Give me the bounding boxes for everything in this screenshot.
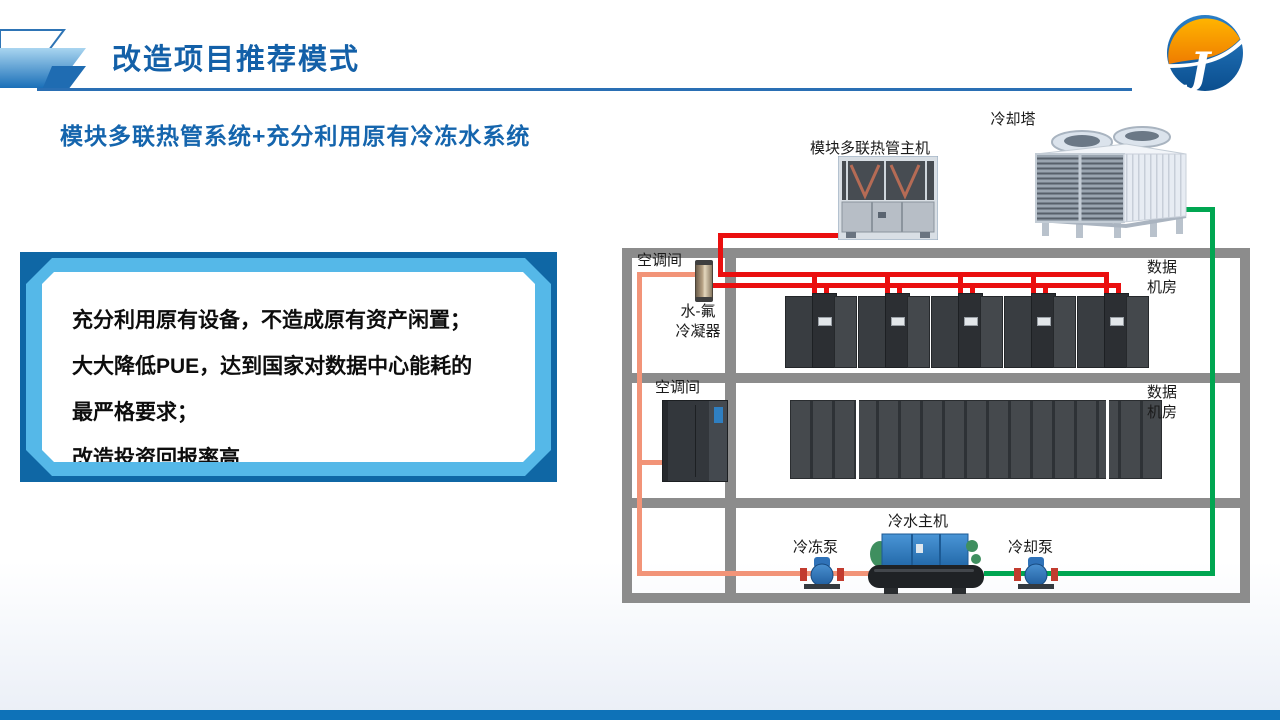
cooling-pump-label: 冷却泵 (1008, 538, 1053, 558)
subtitle: 模块多联热管系统+充分利用原有冷冻水系统 (60, 117, 530, 151)
chilled-pump-image (800, 556, 844, 590)
crac-unit (662, 400, 728, 482)
chiller-label: 冷水主机 (888, 512, 948, 532)
refrigerant-pipe-unit-vertical (718, 233, 723, 277)
benefits-text: 充分利用原有设备，不造成原有资产闲置； 大大降低PUE，达到国家对数据中心能耗的… (72, 298, 521, 482)
crac-logo-badge (714, 407, 723, 423)
refrigerant-pipe-return (708, 283, 1121, 288)
server-rack-group (785, 293, 855, 366)
chilled-pump-label: 冷冻泵 (793, 538, 838, 558)
chiller-image (868, 532, 984, 594)
benefit-line: 改造投资回报率高 (72, 436, 521, 482)
server-rack-group (1077, 293, 1147, 366)
server-rack-row (790, 400, 1162, 479)
header-decoration (0, 8, 110, 100)
refrigerant-pipe-unit-horizontal (718, 233, 858, 238)
benefits-box-accent: 充分利用原有设备，不造成原有资产闲置； 大大降低PUE，达到国家对数据中心能耗的… (26, 258, 551, 476)
floor-divider-1 (622, 373, 1250, 383)
data-room-1-label: 数据机房 (1147, 258, 1183, 298)
company-logo: J (1162, 12, 1248, 94)
benefit-line: 充分利用原有设备，不造成原有资产闲置； (72, 298, 521, 344)
condenser-label: 水-氟 冷凝器 (666, 302, 730, 342)
frame-right (1240, 248, 1250, 603)
server-rack-group (858, 293, 928, 366)
server-rack-group (1004, 293, 1074, 366)
cooling-tower-image (1030, 116, 1192, 240)
header-rule (37, 88, 1132, 91)
benefits-box-inner: 充分利用原有设备，不造成原有资产闲置； 大大降低PUE，达到国家对数据中心能耗的… (42, 272, 535, 462)
frame-left (622, 248, 632, 603)
cooling-water-pipe-vertical (1210, 207, 1215, 576)
data-room-2-label: 数据机房 (1147, 383, 1183, 423)
frame-top (622, 248, 1250, 258)
server-rack-group (931, 293, 1001, 366)
cooling-pump-image (1014, 556, 1058, 590)
benefits-box: 充分利用原有设备，不造成原有资产闲置； 大大降低PUE，达到国家对数据中心能耗的… (20, 252, 557, 482)
frame-bottom (622, 593, 1250, 603)
chilled-water-pipe-to-condenser (641, 272, 697, 277)
heat-pipe-unit-image (838, 156, 938, 240)
heat-pipe-unit-label: 模块多联热管主机 (802, 139, 938, 159)
condenser-label-line1: 水-氟 (666, 302, 730, 322)
cooling-tower-label: 冷却塔 (978, 110, 1048, 130)
ac-room-1-label: 空调间 (637, 251, 682, 271)
chilled-water-pipe-vertical (637, 272, 642, 576)
slide: 改造项目推荐模式 J 模块多联热管系统+充分利用原有冷冻水系统 充分利用原有设备… (0, 0, 1280, 720)
page-title: 改造项目推荐模式 (112, 36, 360, 78)
ac-room-2-label: 空调间 (655, 378, 700, 398)
condenser-label-line2: 冷凝器 (666, 322, 730, 342)
benefit-line: 最严格要求； (72, 390, 521, 436)
water-fluorine-condenser (695, 261, 713, 301)
footer-bar (0, 710, 1280, 720)
benefit-line: 大大降低PUE，达到国家对数据中心能耗的 (72, 344, 521, 390)
floor-divider-2 (622, 498, 1250, 508)
refrigerant-pipe-supply (718, 272, 1109, 277)
